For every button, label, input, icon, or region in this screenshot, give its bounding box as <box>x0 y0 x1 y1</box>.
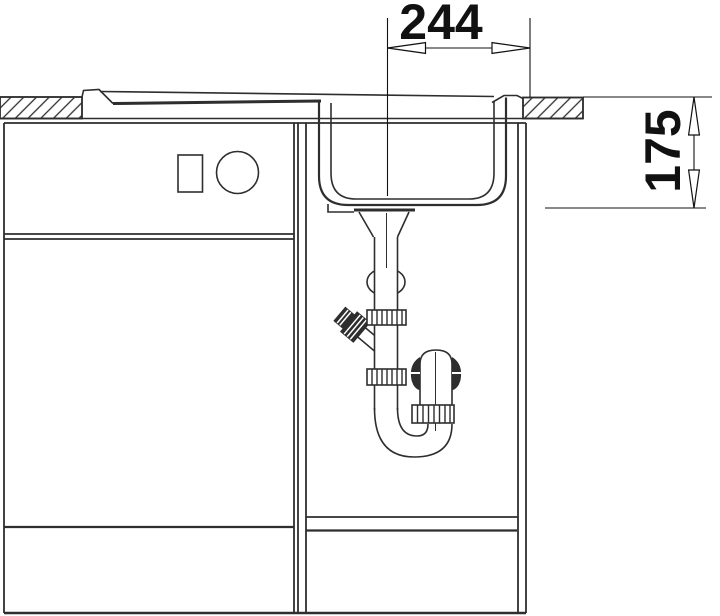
countertop-left-hatch <box>0 97 82 119</box>
dimension-width: 244 <box>388 0 531 196</box>
arrow-right-icon <box>492 43 530 54</box>
drain-trap <box>332 213 462 457</box>
drawer-front-symbols <box>178 152 259 194</box>
square-symbol-icon <box>178 155 203 192</box>
sink-bowl-outer <box>319 98 506 206</box>
sink-bowl-inner <box>331 102 494 199</box>
countertop-right-hatch <box>523 98 583 119</box>
sink-profile <box>82 90 523 238</box>
knurled-nut-upper <box>367 310 406 325</box>
width-dimension-label: 244 <box>399 0 483 50</box>
sink-drainer-surface <box>113 101 321 104</box>
installation-diagram: 244 175 <box>0 0 720 616</box>
sink-rim-top-line <box>100 92 494 97</box>
depth-dimension-label: 175 <box>635 109 691 192</box>
knurled-nut-outlet <box>412 405 454 423</box>
knurled-nut-middle <box>367 369 406 385</box>
drawing-canvas: 244 175 <box>0 0 720 616</box>
drain-flange-taper <box>359 212 409 237</box>
circle-symbol-icon <box>217 152 259 194</box>
sink-right-lip <box>492 96 523 103</box>
